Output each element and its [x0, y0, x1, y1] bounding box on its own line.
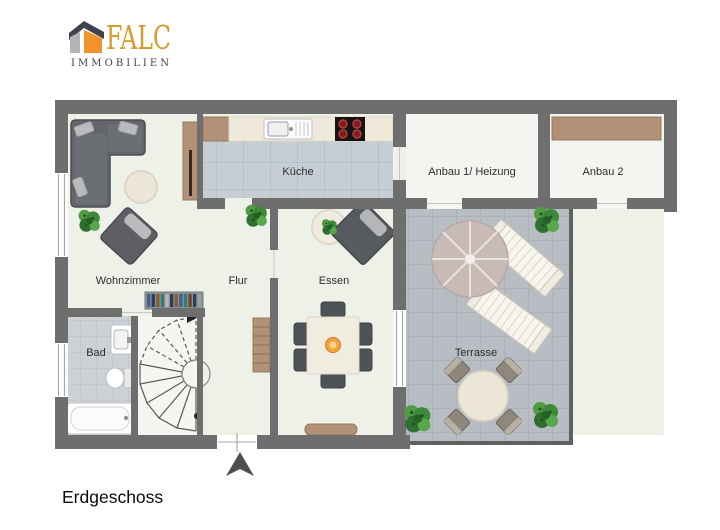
wall-bath-north-1 — [55, 308, 122, 317]
floor-plan: FALC IMMOBILIEN — [0, 0, 720, 530]
parasol — [432, 221, 508, 297]
plant-terrace-se — [533, 402, 558, 428]
wall-annex-divider — [538, 114, 550, 209]
label-anbau1: Anbau 1/ Heizung — [428, 166, 515, 178]
label-anbau2: Anbau 2 — [583, 166, 624, 178]
stairwell-floor — [138, 316, 197, 435]
wall-bath-north-2 — [152, 308, 205, 317]
window-bath — [55, 343, 68, 397]
plant-terrace-ne — [534, 207, 559, 233]
window-living — [55, 173, 68, 257]
plant-dining-rug — [322, 219, 337, 235]
wall-bottom-east — [257, 435, 410, 449]
floorplan-page: FALC IMMOBILIEN — [0, 0, 720, 530]
garden-table — [458, 371, 508, 421]
wall-bottom-west — [55, 435, 217, 449]
entrance-arrow — [226, 452, 254, 476]
label-kueche: Küche — [282, 166, 313, 178]
terrace-door — [393, 310, 406, 387]
label-terrasse: Terrasse — [455, 347, 497, 359]
wall-flur-essen-2 — [270, 278, 278, 449]
logo-subtitle-text: IMMOBILIEN — [71, 58, 172, 69]
kitchen-counter — [229, 117, 393, 141]
kitchen-sink — [264, 119, 312, 139]
bathtub — [67, 403, 133, 434]
wall-essen-terrace-2 — [393, 387, 406, 449]
label-flur: Flur — [229, 275, 248, 287]
wall-essen-terrace-1 — [393, 180, 406, 310]
terrace-edge-bottom — [406, 441, 573, 445]
falc-logo: FALC IMMOBILIEN — [69, 18, 172, 69]
dining-bench — [305, 424, 357, 435]
anbau2-workbench — [552, 117, 661, 140]
label-essen: Essen — [319, 275, 350, 287]
room-anbau1-floor — [406, 114, 538, 209]
wall-top — [55, 100, 677, 114]
plant-living — [79, 210, 100, 232]
kitchen-corner-cabinet — [203, 117, 229, 141]
plant-terrace-sw — [404, 405, 430, 432]
fruit-bowl-center — [330, 342, 337, 349]
wall-annex-south-1 — [462, 198, 597, 209]
wall-right — [664, 100, 677, 212]
toilet — [106, 368, 132, 388]
plant-hall — [246, 205, 267, 227]
wall-living-kitchen — [197, 114, 203, 209]
cooktop — [335, 117, 365, 141]
round-rug — [125, 171, 157, 203]
bookshelf — [145, 292, 203, 309]
terrace-edge-right — [569, 209, 573, 445]
logo-brand-text: FALC — [106, 18, 171, 57]
wall-flur-essen-1 — [270, 209, 278, 250]
wall-kitchen-annex-1 — [393, 114, 406, 147]
label-bad: Bad — [86, 347, 106, 359]
label-wohnzimmer: Wohnzimmer — [96, 275, 161, 287]
entrance-door — [217, 433, 257, 452]
wash-basin — [111, 325, 132, 354]
wall-stairs-east — [197, 316, 203, 449]
wall-bath-stairs — [131, 316, 138, 435]
floor-title: Erdgeschoss — [62, 487, 163, 507]
wall-annex-south-2 — [627, 198, 677, 209]
